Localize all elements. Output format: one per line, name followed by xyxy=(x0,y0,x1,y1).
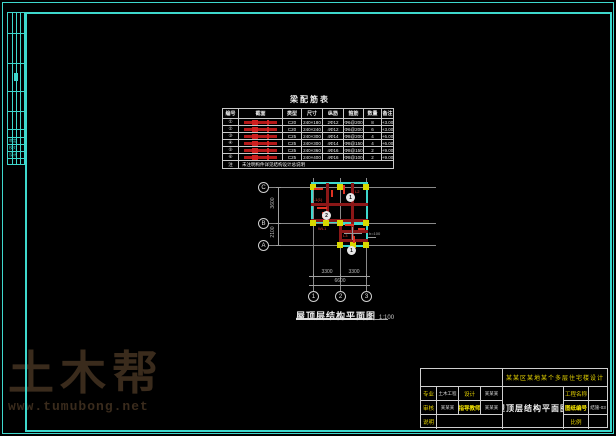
table-cell xyxy=(239,154,283,161)
dimension-text: 6600 xyxy=(331,278,349,284)
dimension-tick xyxy=(366,274,367,279)
table-cell: 240×240 xyxy=(302,126,323,133)
field-label: 说明 xyxy=(421,415,437,429)
table-header-cell: 数量 xyxy=(364,109,382,119)
plan-scale: 1:100 xyxy=(379,315,394,321)
dimension-text: 3300 xyxy=(345,269,363,275)
column-marker xyxy=(337,220,343,226)
table-cell xyxy=(239,147,283,154)
rebar-mark xyxy=(317,207,327,209)
table-cell: Φ8@100 xyxy=(344,154,364,161)
table-title: 梁配筋表 xyxy=(270,94,350,105)
dimension-tick xyxy=(276,245,281,246)
section-sketch xyxy=(244,156,277,159)
table-cell: 8 xyxy=(364,119,382,126)
axis-bubble-bottom: 2 xyxy=(335,291,346,302)
table-cell: 4 xyxy=(364,140,382,147)
strip-divider xyxy=(8,63,24,64)
table-cell: 6 xyxy=(364,126,382,133)
table-header-cell: 备注 xyxy=(382,109,394,119)
table-header-cell: 类型 xyxy=(283,109,302,119)
detail-bubble: 1 xyxy=(347,246,356,255)
table-cell: ② xyxy=(223,126,239,133)
beam-label: WL1 xyxy=(318,226,326,231)
field-label: 专业 xyxy=(421,387,437,401)
table-header-cell: 箍筋 xyxy=(344,109,364,119)
column-marker xyxy=(363,242,369,248)
table-cell: 240×400 xyxy=(302,154,323,161)
rebar-mark xyxy=(345,224,354,226)
axis-bubble-left: A xyxy=(258,240,269,251)
dimension-tick xyxy=(276,187,281,188)
field-value: 某某某 xyxy=(481,387,503,401)
beam-label: L3 xyxy=(343,233,347,238)
dimension-tick xyxy=(276,223,281,224)
field-value xyxy=(589,387,607,401)
dimension-text: 3300 xyxy=(318,269,336,275)
table-footer-note: 未注明构件详见结构设计总说明 xyxy=(239,161,394,169)
cad-drawing-canvas: 土木帮 www.tumubong.net 审定 校对 设计 梁配筋表 编号截面类… xyxy=(0,0,616,436)
table-cell: 4Φ16 xyxy=(323,147,344,154)
table-cell: Φ6@200 xyxy=(344,119,364,126)
rebar-mark xyxy=(314,188,323,190)
column-marker xyxy=(310,220,316,226)
strip-divider xyxy=(8,91,24,92)
field-label: 工程名称 xyxy=(564,387,589,401)
table-cell: +9.00 xyxy=(382,147,394,154)
table-cell: C25 xyxy=(283,140,302,147)
field-label: 图纸编号 xyxy=(564,401,589,415)
table-cell: 4 xyxy=(364,133,382,140)
strip-divider xyxy=(8,158,24,159)
field-value: 某某某 xyxy=(437,401,459,415)
dimension-text: 2100 xyxy=(270,223,276,241)
plan-title-underline xyxy=(296,318,372,320)
detail-bubble: 1 xyxy=(346,193,355,202)
field-label: 审核 xyxy=(421,401,437,415)
slab-note: h=100 xyxy=(369,231,380,236)
strip-label: 校对 xyxy=(9,145,24,151)
slab-rebar-line xyxy=(352,227,353,240)
strip-label: 审定 xyxy=(9,138,24,144)
table-cell xyxy=(239,126,283,133)
table-cell: C20 xyxy=(283,126,302,133)
dimension-text: 3600 xyxy=(270,194,276,212)
section-sketch xyxy=(244,121,277,124)
component-table: 编号截面类型尺寸纵筋箍筋数量备注①C20240×1802Φ12Φ6@2008+3… xyxy=(222,108,394,169)
table-cell: +3.00 xyxy=(382,119,394,126)
table-cell: 2 xyxy=(364,147,382,154)
dimension-line xyxy=(278,187,279,245)
table-cell xyxy=(239,133,283,140)
axis-bubble-bottom: 1 xyxy=(308,291,319,302)
strip-divider xyxy=(8,129,24,130)
table-cell xyxy=(239,119,283,126)
table-cell: +6.00 xyxy=(382,133,394,140)
rebar-mark xyxy=(343,185,345,194)
table-cell: 4Φ12 xyxy=(323,126,344,133)
title-block-cell xyxy=(437,415,503,429)
dimension-tick xyxy=(313,274,314,279)
title-block: 某某区某地某个多层住宅楼设计 专业 土木工程 设计 某某某 审核 某某某 指导教… xyxy=(420,368,608,428)
table-cell: C25 xyxy=(283,133,302,140)
table-cell xyxy=(239,140,283,147)
table-cell: C25 xyxy=(283,147,302,154)
detail-bubble: 2 xyxy=(322,211,331,220)
strip-divider xyxy=(8,33,24,34)
table-header-cell: 截面 xyxy=(239,109,283,119)
beam-label: L1(1) xyxy=(313,197,322,202)
axis-bubble-bottom: 3 xyxy=(361,291,372,302)
field-label: 指导教师 xyxy=(459,401,481,415)
table-cell: ⑥ xyxy=(223,154,239,161)
table-cell: C20 xyxy=(283,119,302,126)
column-marker xyxy=(363,220,369,226)
table-cell: Φ8@200 xyxy=(344,133,364,140)
field-value: 某某某 xyxy=(481,401,503,415)
drawing-name: 屋顶层结构平面图 xyxy=(503,387,564,429)
strip-label: 设计 xyxy=(9,152,24,158)
rebar-mark xyxy=(353,236,355,243)
table-cell: 240×360 xyxy=(302,147,323,154)
table-header-cell: 纵筋 xyxy=(323,109,344,119)
dimension-line xyxy=(309,285,370,286)
strip-divider xyxy=(8,111,24,112)
table-cell: +6.00 xyxy=(382,140,394,147)
side-title-strip: 审定 校对 设计 xyxy=(7,12,25,165)
table-cell: ⑤ xyxy=(223,147,239,154)
field-value: 结施-03 xyxy=(589,401,607,415)
rebar-mark xyxy=(358,228,365,230)
table-cell: 240×180 xyxy=(302,119,323,126)
slab-rebar-line xyxy=(368,237,376,238)
title-block-cell xyxy=(421,369,503,387)
table-cell: 4Φ14 xyxy=(323,133,344,140)
project-name: 某某区某地某个多层住宅楼设计 xyxy=(503,369,607,387)
table-cell: 240×300 xyxy=(302,140,323,147)
beam-line xyxy=(311,203,368,206)
field-label: 设计 xyxy=(459,387,481,401)
table-cell: 4Φ16 xyxy=(323,154,344,161)
table-cell: Φ6@200 xyxy=(344,126,364,133)
section-sketch xyxy=(244,142,277,145)
table-cell: 4Φ14 xyxy=(323,140,344,147)
field-value: 土木工程 xyxy=(437,387,459,401)
table-cell: Φ8@150 xyxy=(344,140,364,147)
axis-bubble-left: B xyxy=(258,218,269,229)
table-cell: ① xyxy=(223,119,239,126)
table-cell: ④ xyxy=(223,140,239,147)
field-label: 比例 xyxy=(564,415,589,429)
table-cell: +3.00 xyxy=(382,126,394,133)
table-cell: ③ xyxy=(223,133,239,140)
table-cell: 2Φ12 xyxy=(323,119,344,126)
section-sketch xyxy=(244,149,277,152)
table-footer-label: 注 xyxy=(223,161,239,169)
section-sketch xyxy=(244,135,277,138)
table-cell: Φ8@150 xyxy=(344,147,364,154)
table-header-cell: 编号 xyxy=(223,109,239,119)
axis-bubble-left: C xyxy=(258,182,269,193)
column-marker xyxy=(337,242,343,248)
table-header-cell: 尺寸 xyxy=(302,109,323,119)
table-cell: +9.00 xyxy=(382,154,394,161)
beam-label: L2 xyxy=(355,189,359,194)
column-marker xyxy=(363,184,369,190)
table-cell: 2 xyxy=(364,154,382,161)
table-cell: 240×300 xyxy=(302,133,323,140)
table-cell: C25 xyxy=(283,154,302,161)
field-value xyxy=(589,415,607,429)
section-sketch xyxy=(244,128,277,131)
rebar-mark xyxy=(331,190,333,197)
plan-title-underline xyxy=(374,319,388,320)
strip-mark xyxy=(14,73,18,81)
plan-title: 屋顶层结构平面图1:100 xyxy=(296,306,394,324)
